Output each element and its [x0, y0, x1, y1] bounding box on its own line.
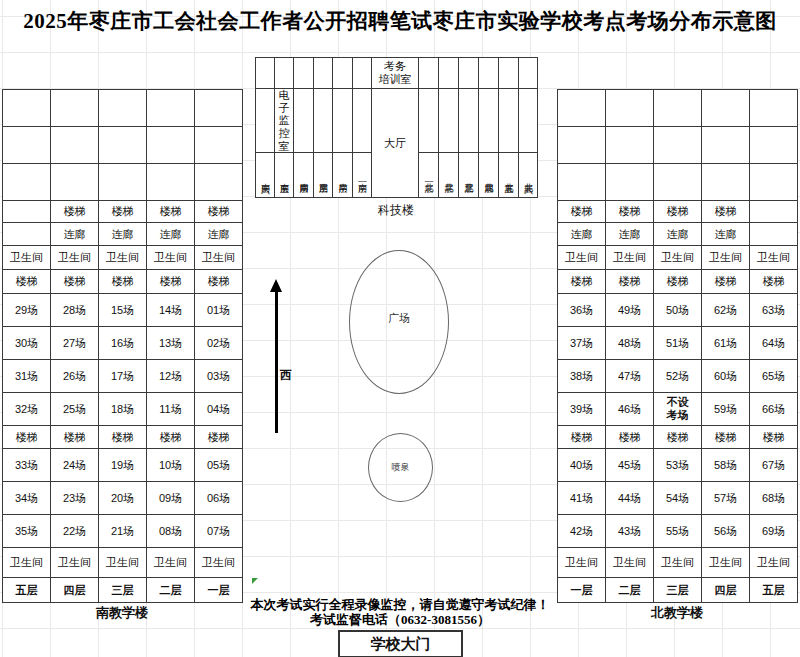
green-marker-icon — [252, 578, 258, 584]
room-cell: 10场 — [147, 449, 195, 482]
spacer-cell — [3, 127, 51, 164]
empty-cell — [353, 89, 372, 153]
notice-line1: 本次考试实行全程录像监控，请自觉遵守考试纪律！ — [200, 597, 600, 612]
room-cell: 17场 — [99, 360, 147, 393]
room-cell: 65场 — [750, 360, 798, 393]
room-cell: 45场 — [606, 449, 654, 482]
corridor-cell: 连廊 — [99, 223, 147, 246]
empty-cell — [99, 90, 147, 127]
science-floor-cell: 南六层 — [256, 153, 275, 198]
room-cell: 47场 — [606, 360, 654, 393]
room-cell: 31场 — [3, 360, 51, 393]
stairs-cell: 楼梯 — [702, 426, 750, 449]
science-floor-cell: 北一层 — [419, 153, 439, 198]
spacer-cell — [750, 164, 798, 201]
exam-training-room-cell: 考务 培训室 — [372, 58, 419, 89]
empty-cell — [419, 89, 439, 153]
empty-cell — [51, 90, 99, 127]
empty-cell — [479, 58, 499, 89]
stairs-cell: 楼梯 — [51, 270, 99, 294]
fountain-label: 喷泉 — [392, 461, 410, 474]
empty-cell — [702, 127, 750, 164]
toilet-cell: 卫生间 — [558, 548, 606, 578]
empty-cell — [654, 127, 702, 164]
toilet-cell: 卫生间 — [147, 548, 195, 578]
empty-cell — [439, 89, 459, 153]
science-floor-label: 南五层 — [280, 176, 289, 179]
empty-cell — [147, 164, 195, 201]
toilet-cell: 卫生间 — [606, 246, 654, 270]
corridor-cell: 连廊 — [51, 223, 99, 246]
room-cell: 18场 — [99, 393, 147, 426]
room-cell: 26场 — [51, 360, 99, 393]
toilet-cell: 卫生间 — [3, 548, 51, 578]
empty-cell — [147, 127, 195, 164]
room-cell: 35场 — [3, 515, 51, 548]
room-cell: 61场 — [702, 327, 750, 360]
room-cell: 37场 — [558, 327, 606, 360]
toilet-cell: 卫生间 — [750, 246, 798, 270]
science-floor-label: 北五层 — [504, 176, 513, 179]
stairs-cell: 楼梯 — [606, 201, 654, 223]
room-cell: 20场 — [99, 482, 147, 515]
room-cell: 53场 — [654, 449, 702, 482]
room-cell: 16场 — [99, 327, 147, 360]
empty-cell — [333, 89, 353, 153]
empty-cell — [499, 89, 519, 153]
spacer-cell — [3, 201, 51, 223]
room-cell: 33场 — [3, 449, 51, 482]
stairs-cell: 楼梯 — [558, 426, 606, 449]
science-floor-cell: 南五层 — [275, 153, 294, 198]
toilet-cell: 卫生间 — [654, 246, 702, 270]
plaza-label: 广场 — [388, 311, 410, 326]
stairs-cell: 楼梯 — [195, 426, 243, 449]
room-cell: 44场 — [606, 482, 654, 515]
room-cell: 11场 — [147, 393, 195, 426]
room-cell: 05场 — [195, 449, 243, 482]
room-cell: 57场 — [702, 482, 750, 515]
stairs-cell: 楼梯 — [3, 426, 51, 449]
stairs-cell: 楼梯 — [51, 426, 99, 449]
room-cell: 58场 — [702, 449, 750, 482]
science-floor-label: 北六层 — [524, 176, 533, 179]
toilet-cell: 卫生间 — [51, 548, 99, 578]
science-floor-cell: 北二层 — [439, 153, 459, 198]
room-cell: 60场 — [702, 360, 750, 393]
stairs-cell: 楼梯 — [606, 426, 654, 449]
room-cell: 64场 — [750, 327, 798, 360]
room-cell: 68场 — [750, 482, 798, 515]
room-cell: 30场 — [3, 327, 51, 360]
toilet-cell: 卫生间 — [99, 246, 147, 270]
spacer-cell — [750, 201, 798, 223]
stairs-cell: 楼梯 — [195, 201, 243, 223]
west-arrow-line — [275, 291, 278, 433]
empty-cell — [558, 164, 606, 201]
science-floor-label: 北四层 — [484, 176, 493, 179]
room-cell: 56场 — [702, 515, 750, 548]
toilet-cell: 卫生间 — [195, 246, 243, 270]
empty-cell — [439, 58, 459, 89]
room-cell: 07场 — [195, 515, 243, 548]
room-cell: 06场 — [195, 482, 243, 515]
empty-cell — [99, 127, 147, 164]
stairs-cell: 楼梯 — [99, 270, 147, 294]
room-cell: 48场 — [606, 327, 654, 360]
empty-cell — [479, 89, 499, 153]
empty-cell — [256, 58, 275, 89]
room-cell: 66场 — [750, 393, 798, 426]
stairs-cell: 楼梯 — [147, 426, 195, 449]
room-cell: 67场 — [750, 449, 798, 482]
plaza-ellipse: 广场 — [349, 250, 449, 394]
floor-cell: 五层 — [750, 578, 798, 603]
empty-cell — [147, 90, 195, 127]
empty-cell — [294, 58, 314, 89]
floor-cell: 三层 — [654, 578, 702, 603]
toilet-cell: 卫生间 — [750, 548, 798, 578]
room-cell: 02场 — [195, 327, 243, 360]
empty-cell — [51, 164, 99, 201]
science-floor-cell: 南二层 — [333, 153, 353, 198]
school-gate-box: 学校大门 — [338, 630, 463, 657]
room-cell: 50场 — [654, 294, 702, 327]
room-cell: 09场 — [147, 482, 195, 515]
room-cell: 41场 — [558, 482, 606, 515]
room-cell: 01场 — [195, 294, 243, 327]
room-cell: 08场 — [147, 515, 195, 548]
floor-cell: 三层 — [99, 578, 147, 603]
monitor-room-cell: 电子 监控 室 — [275, 89, 294, 153]
stairs-cell: 楼梯 — [99, 201, 147, 223]
toilet-cell: 卫生间 — [606, 548, 654, 578]
spacer-cell — [3, 164, 51, 201]
stairs-cell: 楼梯 — [99, 426, 147, 449]
room-cell: 59场 — [702, 393, 750, 426]
science-floor-label: 北一层 — [424, 176, 433, 179]
empty-cell — [519, 89, 538, 153]
science-floor-cell: 南一层 — [353, 153, 372, 198]
room-cell: 32场 — [3, 393, 51, 426]
room-cell: 46场 — [606, 393, 654, 426]
room-cell: 40场 — [558, 449, 606, 482]
science-floor-cell: 北六层 — [519, 153, 538, 198]
stairs-cell: 楼梯 — [558, 201, 606, 223]
science-floor-label: 北二层 — [444, 176, 453, 179]
stairs-cell: 楼梯 — [51, 201, 99, 223]
room-cell: 43场 — [606, 515, 654, 548]
empty-cell — [499, 58, 519, 89]
science-floor-label: 南一层 — [358, 176, 367, 179]
empty-cell — [294, 89, 314, 153]
room-cell: 15场 — [99, 294, 147, 327]
west-direction-label: 西 — [280, 367, 292, 384]
room-cell: 63场 — [750, 294, 798, 327]
room-cell: 54场 — [654, 482, 702, 515]
toilet-cell: 卫生间 — [654, 548, 702, 578]
room-cell: 51场 — [654, 327, 702, 360]
empty-cell — [195, 127, 243, 164]
room-cell: 19场 — [99, 449, 147, 482]
empty-cell — [654, 90, 702, 127]
stairs-cell: 楼梯 — [750, 270, 798, 294]
spacer-cell — [750, 90, 798, 127]
corridor-cell: 连廊 — [654, 223, 702, 246]
empty-cell — [702, 164, 750, 201]
room-cell: 28场 — [51, 294, 99, 327]
stairs-cell: 楼梯 — [195, 270, 243, 294]
spacer-cell — [750, 223, 798, 246]
room-cell: 21场 — [99, 515, 147, 548]
empty-cell — [353, 58, 372, 89]
empty-cell — [419, 58, 439, 89]
room-cell: 27场 — [51, 327, 99, 360]
south-building-table: 楼梯楼梯楼梯楼梯 连廊连廊连廊连廊 卫生间卫生间卫生间卫生间卫生间 楼梯楼梯楼梯… — [2, 89, 243, 603]
empty-cell — [195, 90, 243, 127]
room-cell: 55场 — [654, 515, 702, 548]
empty-cell — [51, 127, 99, 164]
corridor-cell: 连廊 — [195, 223, 243, 246]
floor-cell: 二层 — [147, 578, 195, 603]
floor-cell: 五层 — [3, 578, 51, 603]
spacer-cell — [750, 127, 798, 164]
room-cell: 04场 — [195, 393, 243, 426]
room-cell: 39场 — [558, 393, 606, 426]
empty-cell — [333, 58, 353, 89]
spacer-cell — [3, 223, 51, 246]
stairs-cell: 楼梯 — [147, 270, 195, 294]
stairs-cell: 楼梯 — [654, 426, 702, 449]
stairs-cell: 楼梯 — [147, 201, 195, 223]
room-cell: 62场 — [702, 294, 750, 327]
empty-cell — [558, 127, 606, 164]
science-floor-cell: 北四层 — [479, 153, 499, 198]
room-cell: 25场 — [51, 393, 99, 426]
toilet-cell: 卫生间 — [702, 548, 750, 578]
room-cell: 13场 — [147, 327, 195, 360]
empty-cell — [275, 58, 294, 89]
room-cell: 12场 — [147, 360, 195, 393]
corridor-cell: 连廊 — [702, 223, 750, 246]
stairs-cell: 楼梯 — [750, 426, 798, 449]
empty-cell — [256, 89, 275, 153]
toilet-cell: 卫生间 — [99, 548, 147, 578]
no-exam-room-cell: 不设 考场 — [654, 393, 702, 426]
science-floor-cell: 南四层 — [294, 153, 314, 198]
empty-cell — [314, 89, 333, 153]
empty-cell — [314, 58, 333, 89]
empty-cell — [519, 58, 538, 89]
stairs-cell: 楼梯 — [3, 270, 51, 294]
stairs-cell: 楼梯 — [702, 270, 750, 294]
room-cell: 69场 — [750, 515, 798, 548]
room-cell: 38场 — [558, 360, 606, 393]
exam-map-canvas: 2025年枣庄市工会社会工作者公开招聘笔试枣庄市实验学校考点考场分布示意图 楼梯… — [0, 0, 800, 657]
science-floor-label: 南二层 — [338, 176, 347, 179]
corridor-cell: 连廊 — [147, 223, 195, 246]
north-building-table: 楼梯楼梯楼梯楼梯 连廊连廊连廊连廊 卫生间卫生间卫生间卫生间卫生间 楼梯楼梯楼梯… — [557, 89, 798, 603]
science-floor-cell: 北五层 — [499, 153, 519, 198]
toilet-cell: 卫生间 — [558, 246, 606, 270]
stairs-cell: 楼梯 — [654, 201, 702, 223]
science-building-label: 科技楼 — [255, 202, 537, 219]
empty-cell — [459, 58, 479, 89]
science-floor-cell: 北三层 — [459, 153, 479, 198]
science-floor-label: 南四层 — [299, 176, 308, 179]
room-cell: 34场 — [3, 482, 51, 515]
toilet-cell: 卫生间 — [195, 548, 243, 578]
empty-cell — [654, 164, 702, 201]
floor-cell: 四层 — [51, 578, 99, 603]
fountain-circle: 喷泉 — [368, 433, 433, 502]
empty-cell — [606, 90, 654, 127]
room-cell: 29场 — [3, 294, 51, 327]
room-cell: 36场 — [558, 294, 606, 327]
stairs-cell: 楼梯 — [606, 270, 654, 294]
science-floor-label: 南三层 — [319, 176, 328, 179]
notice-line2: 考试监督电话（0632-3081556） — [200, 612, 600, 627]
science-floor-label: 南六层 — [261, 176, 270, 179]
empty-cell — [702, 90, 750, 127]
toilet-cell: 卫生间 — [3, 246, 51, 270]
floor-cell: 二层 — [606, 578, 654, 603]
empty-cell — [99, 164, 147, 201]
room-cell: 49场 — [606, 294, 654, 327]
corridor-cell: 连廊 — [606, 223, 654, 246]
science-building-table: 考务 培训室 电子 监控 室 大厅 南六层 南五层 南四层 南三层 南二层 南一… — [255, 57, 538, 198]
empty-cell — [606, 164, 654, 201]
room-cell: 23场 — [51, 482, 99, 515]
room-cell: 42场 — [558, 515, 606, 548]
corridor-cell: 连廊 — [558, 223, 606, 246]
science-floor-cell: 南三层 — [314, 153, 333, 198]
stairs-cell: 楼梯 — [558, 270, 606, 294]
stairs-cell: 楼梯 — [654, 270, 702, 294]
room-cell: 52场 — [654, 360, 702, 393]
toilet-cell: 卫生间 — [702, 246, 750, 270]
science-floor-label: 北三层 — [464, 176, 473, 179]
exam-notice: 本次考试实行全程录像监控，请自觉遵守考试纪律！ 考试监督电话（0632-3081… — [200, 597, 600, 627]
page-title: 2025年枣庄市工会社会工作者公开招聘笔试枣庄市实验学校考点考场分布示意图 — [0, 7, 800, 35]
toilet-cell: 卫生间 — [51, 246, 99, 270]
stairs-cell: 楼梯 — [702, 201, 750, 223]
empty-cell — [558, 90, 606, 127]
toilet-cell: 卫生间 — [147, 246, 195, 270]
room-cell: 03场 — [195, 360, 243, 393]
empty-cell — [606, 127, 654, 164]
room-cell: 24场 — [51, 449, 99, 482]
empty-cell — [195, 164, 243, 201]
spacer-cell — [3, 90, 51, 127]
hall-cell: 大厅 — [372, 89, 419, 198]
empty-cell — [459, 89, 479, 153]
room-cell: 22场 — [51, 515, 99, 548]
floor-cell: 四层 — [702, 578, 750, 603]
room-cell: 14场 — [147, 294, 195, 327]
